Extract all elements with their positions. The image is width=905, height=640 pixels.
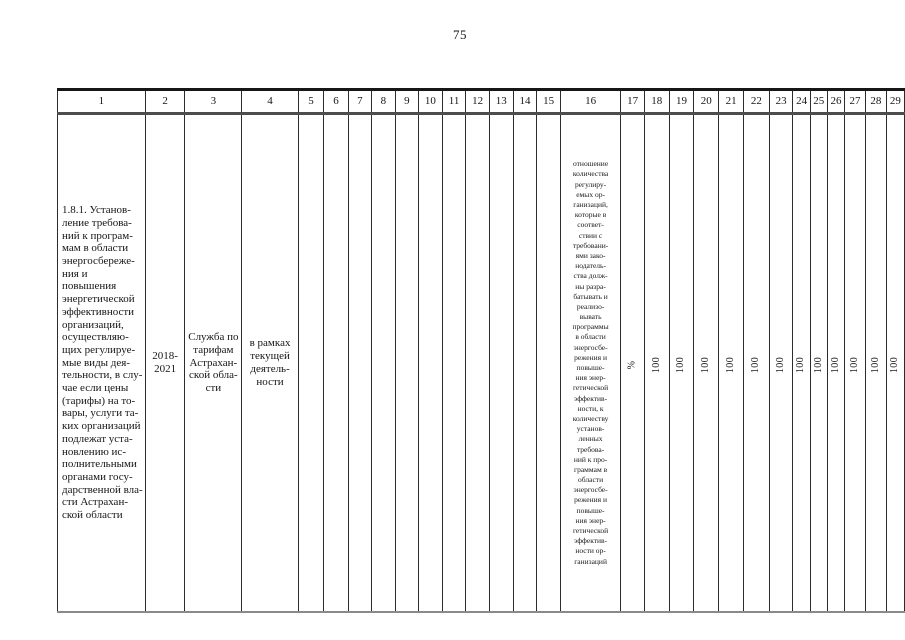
cell-value-18: 100: [644, 114, 669, 613]
cell-value-25: 100: [810, 114, 827, 613]
value-text: 100: [871, 357, 881, 373]
cell-value-20: 100: [694, 114, 719, 613]
program-activities-table: 1 2 3 4 5 6 7 8 9 10 11 12 13 14 15 16 1…: [57, 88, 905, 613]
cell-empty-14: [513, 114, 537, 613]
col-header-6: 6: [324, 90, 348, 114]
col-header-12: 12: [466, 90, 490, 114]
cell-empty-15: [537, 114, 561, 613]
cell-value-21: 100: [719, 114, 744, 613]
col-header-24: 24: [793, 90, 810, 114]
col-header-2: 2: [145, 90, 185, 114]
col-header-25: 25: [810, 90, 827, 114]
cell-value-23: 100: [769, 114, 793, 613]
col-header-7: 7: [348, 90, 371, 114]
cell-empty-11: [442, 114, 466, 613]
cell-value-28: 100: [865, 114, 886, 613]
value-text: 100: [677, 357, 687, 373]
col-header-10: 10: [419, 90, 443, 114]
col-header-29: 29: [886, 90, 904, 114]
cell-value-22: 100: [743, 114, 769, 613]
col-header-17: 17: [621, 90, 645, 114]
col-header-21: 21: [719, 90, 744, 114]
cell-empty-13: [489, 114, 513, 613]
value-text: 100: [726, 357, 736, 373]
cell-value-29: 100: [886, 114, 904, 613]
period-text: 2018- 2021: [146, 350, 185, 376]
col-header-23: 23: [769, 90, 793, 114]
col-header-27: 27: [845, 90, 866, 114]
col-header-5: 5: [298, 90, 323, 114]
value-text: 100: [751, 357, 761, 373]
indicator-name-text: отношение количества регулиру- емых ор- …: [561, 159, 620, 567]
value-text: 100: [890, 357, 900, 373]
col-header-4: 4: [242, 90, 299, 114]
cell-funding-source: в рамках текущей деятель- ности: [242, 114, 299, 613]
page-number: 75: [0, 27, 905, 43]
cell-empty-7: [348, 114, 371, 613]
cell-empty-5: [298, 114, 323, 613]
col-header-13: 13: [489, 90, 513, 114]
col-header-15: 15: [537, 90, 561, 114]
cell-indicator-name: отношение количества регулиру- емых ор- …: [560, 114, 620, 613]
col-header-19: 19: [669, 90, 694, 114]
col-header-16: 16: [560, 90, 620, 114]
value-text: 100: [776, 357, 786, 373]
col-header-26: 26: [827, 90, 844, 114]
executor-text: Служба по тарифам Астрахан- ской обла- с…: [185, 331, 241, 396]
cell-empty-9: [395, 114, 418, 613]
cell-unit: %: [621, 114, 645, 613]
value-text: 100: [831, 357, 841, 373]
col-header-28: 28: [865, 90, 886, 114]
unit-text: %: [628, 361, 638, 370]
col-header-8: 8: [372, 90, 395, 114]
col-header-20: 20: [694, 90, 719, 114]
value-text: 100: [652, 357, 662, 373]
value-text: 100: [850, 357, 860, 373]
col-header-11: 11: [442, 90, 466, 114]
col-header-18: 18: [644, 90, 669, 114]
cell-period: 2018- 2021: [145, 114, 185, 613]
value-text: 100: [797, 357, 807, 373]
cell-value-19: 100: [669, 114, 694, 613]
cell-value-24: 100: [793, 114, 810, 613]
value-text: 100: [701, 357, 711, 373]
col-header-14: 14: [513, 90, 537, 114]
cell-empty-10: [419, 114, 443, 613]
cell-empty-12: [466, 114, 490, 613]
cell-value-27: 100: [845, 114, 866, 613]
cell-empty-6: [324, 114, 348, 613]
cell-empty-8: [372, 114, 395, 613]
col-header-1: 1: [58, 90, 146, 114]
col-header-22: 22: [743, 90, 769, 114]
cell-activity-name: 1.8.1. Установ- ление требова- ний к про…: [58, 114, 146, 613]
document-page: 75 1 2 3 4 5 6 7 8 9 10 11: [0, 0, 905, 640]
activity-name-text: 1.8.1. Установ- ление требова- ний к про…: [58, 204, 145, 522]
value-text: 100: [814, 357, 824, 373]
cell-executor: Служба по тарифам Астрахан- ской обла- с…: [185, 114, 242, 613]
funding-source-text: в рамках текущей деятель- ности: [242, 337, 298, 389]
col-header-3: 3: [185, 90, 242, 114]
table-row: 1.8.1. Установ- ление требова- ний к про…: [58, 114, 905, 613]
cell-value-26: 100: [827, 114, 844, 613]
col-header-9: 9: [395, 90, 418, 114]
table-header-row: 1 2 3 4 5 6 7 8 9 10 11 12 13 14 15 16 1…: [58, 90, 905, 114]
